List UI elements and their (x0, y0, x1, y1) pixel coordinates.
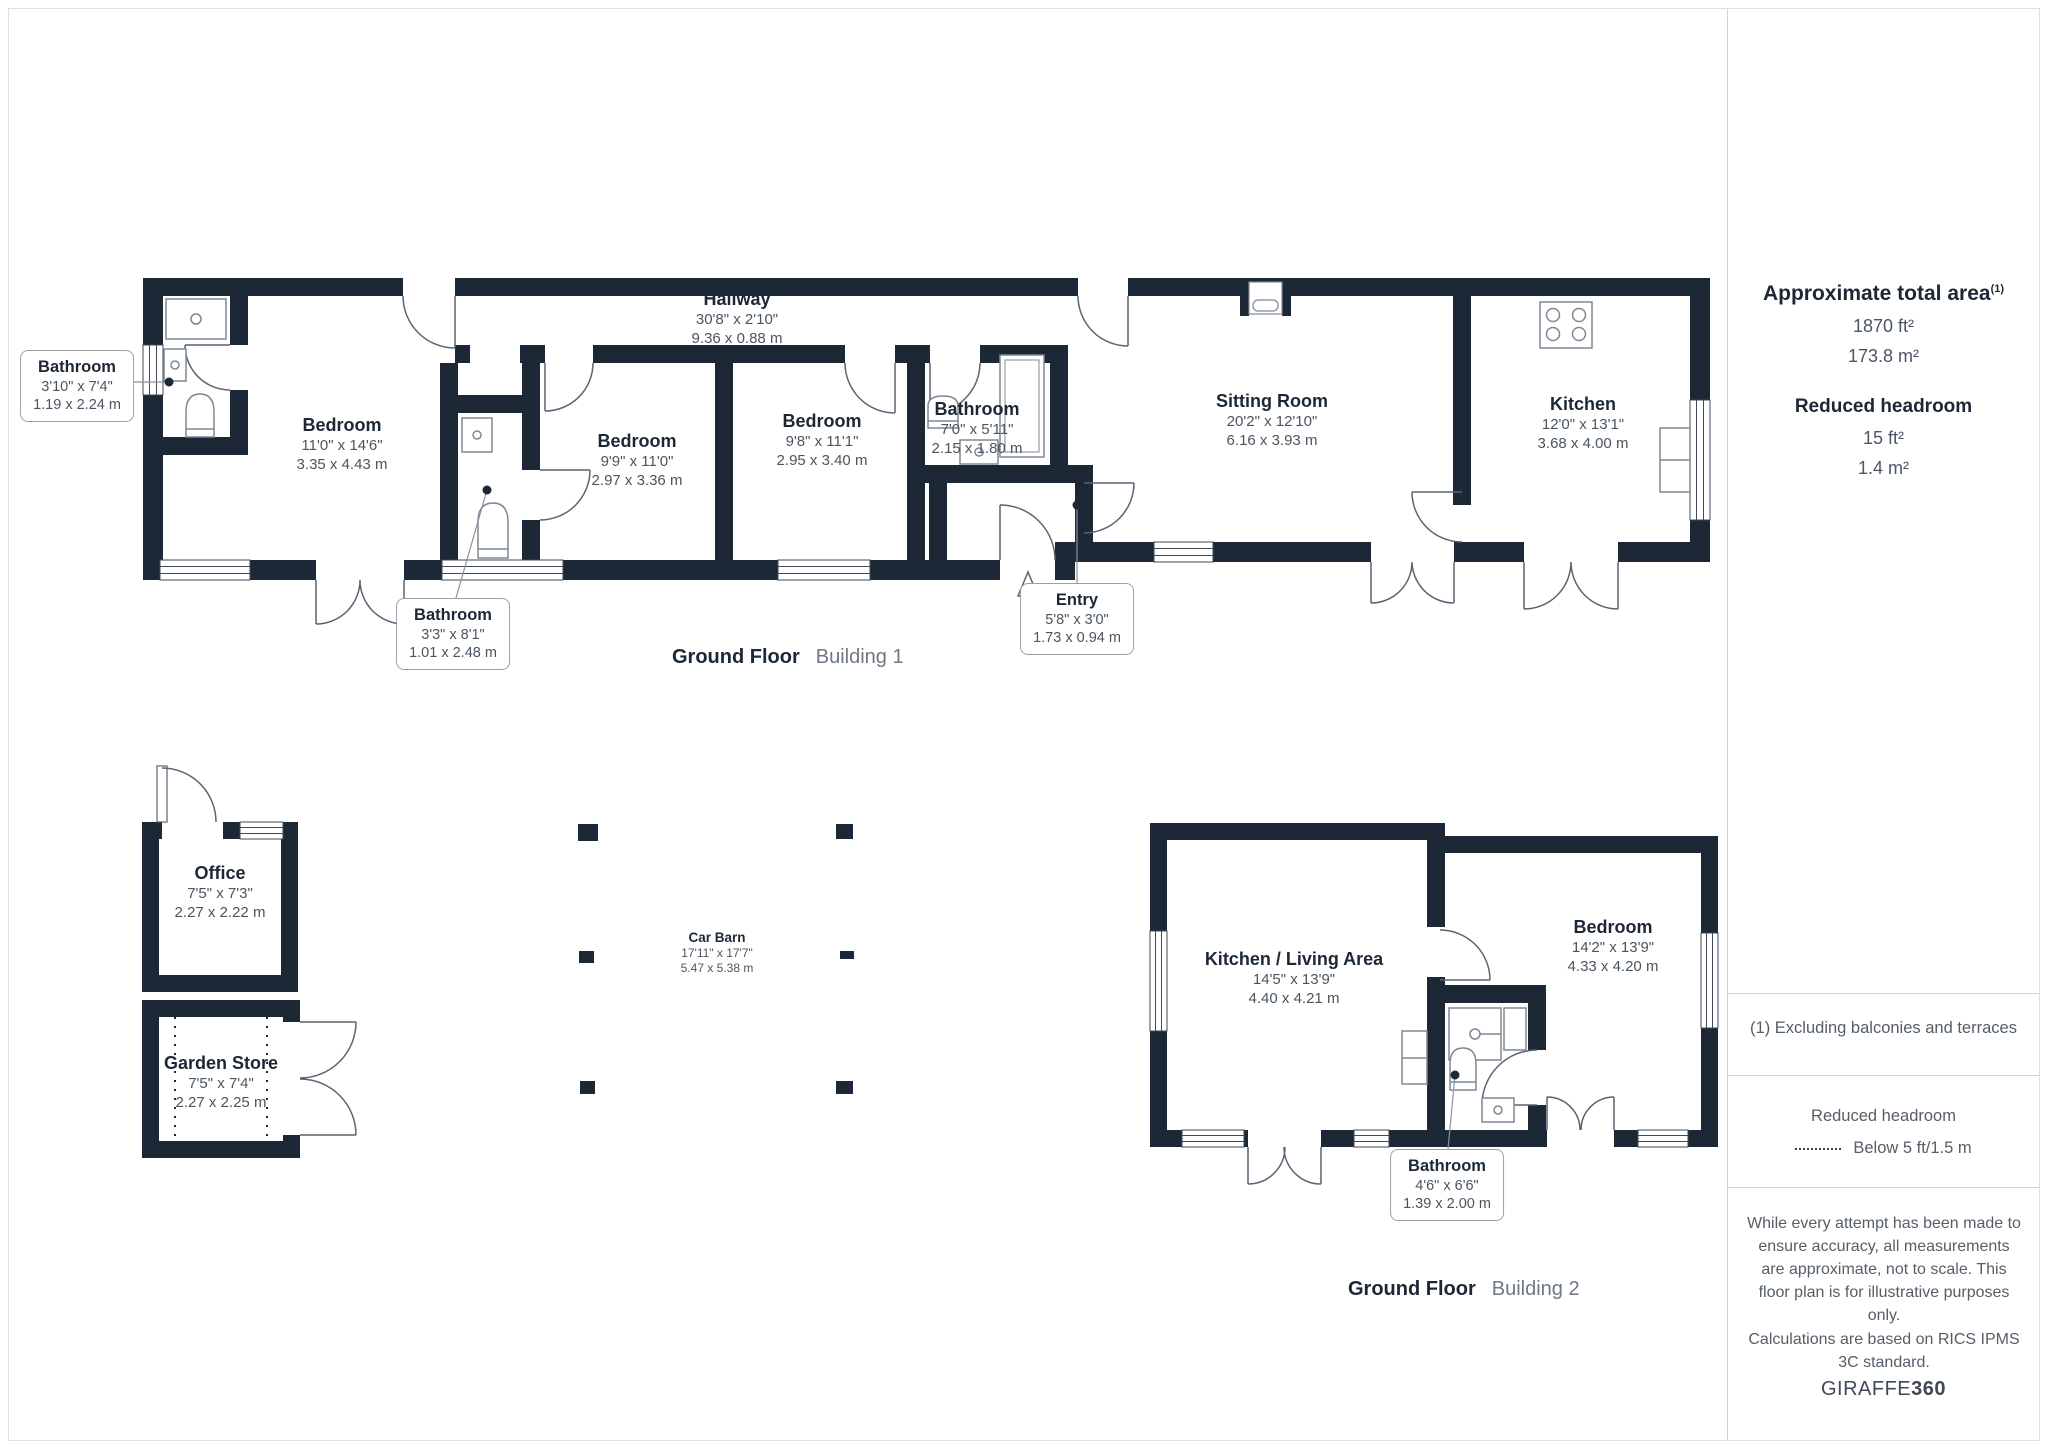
building2-fixtures (1402, 1008, 1526, 1122)
sink-icon (1482, 1098, 1514, 1122)
callout-bathroom-b2: Bathroom 4'6" x 6'6" 1.39 x 2.00 m (1390, 1149, 1504, 1221)
sidebar-section-divider (1728, 993, 2039, 994)
sidebar-divider (1727, 9, 1728, 1440)
total-area-metric: 173.8 m² (1727, 346, 2040, 367)
legend-label: Below 5 ft/1.5 m (1853, 1139, 1971, 1158)
callout-entry: Entry 5'8" x 3'0" 1.73 x 0.94 m (1020, 583, 1134, 655)
room-label-office: Office 7'5" x 7'3" 2.27 x 2.22 m (175, 862, 266, 922)
room-label-bedroom-b2: Bedroom 14'2" x 13'9" 4.33 x 4.20 m (1568, 916, 1659, 976)
room-label-bedroom-2: Bedroom 9'9" x 11'0" 2.97 x 3.36 m (592, 430, 683, 490)
kitchen-sink-icon (1660, 428, 1690, 492)
total-area-imperial: 1870 ft² (1727, 316, 2040, 337)
sidebar-section-divider (1728, 1075, 2039, 1076)
fireplace-niche (1249, 282, 1282, 314)
room-label-sitting-room: Sitting Room 20'2" x 12'10" 6.16 x 3.93 … (1216, 390, 1328, 450)
reduced-headroom-title: Reduced headroom (1727, 396, 2040, 418)
toilet-icon (186, 394, 214, 437)
dotted-line-icon (1795, 1148, 1841, 1150)
reduced-headroom-metric: 1.4 m² (1727, 458, 2040, 479)
legend-row: Below 5 ft/1.5 m (1727, 1139, 2040, 1158)
caption-building1: Ground FloorBuilding 1 (672, 646, 904, 669)
cupboard-icon (1504, 1008, 1526, 1050)
room-label-bathroom-mid: Bathroom 7'0" x 5'11" 2.15 x 1.80 m (932, 398, 1023, 458)
caption-building2: Ground FloorBuilding 2 (1348, 1278, 1580, 1301)
sidebar-section-divider (1728, 1187, 2039, 1188)
footnote-marker: (1) (1991, 283, 2004, 295)
callout-bathroom-small: Bathroom 3'3" x 8'1" 1.01 x 2.48 m (396, 598, 510, 670)
room-label-kitchen-living: Kitchen / Living Area 14'5" x 13'9" 4.40… (1205, 948, 1383, 1008)
room-label-bedroom-1: Bedroom 11'0" x 14'6" 3.35 x 4.43 m (297, 414, 388, 474)
room-label-bedroom-3: Bedroom 9'8" x 11'1" 2.95 x 3.40 m (777, 410, 868, 470)
legend-title: Reduced headroom (1727, 1107, 2040, 1126)
room-label-garden-store: Garden Store 7'5" x 7'4" 2.27 x 2.25 m (164, 1052, 278, 1112)
sidebar-disclaimer-1: While every attempt has been made to ens… (1745, 1212, 2023, 1327)
floor-plan-drawing (0, 0, 2048, 1449)
toilet-icon (478, 503, 508, 558)
sink-icon (462, 418, 492, 452)
room-label-kitchen: Kitchen 12'0" x 13'1" 3.68 x 4.00 m (1538, 393, 1629, 453)
stove-icon (1540, 302, 1592, 348)
sidebar-footnote: (1) Excluding balconies and terraces (1727, 1019, 2040, 1038)
garden-store-doors (300, 1022, 356, 1135)
shower-icon (166, 299, 226, 339)
office-window (240, 822, 283, 839)
counter-icon (1402, 1031, 1427, 1084)
sink-icon (164, 349, 186, 381)
sidebar-total-area-title: Approximate total area(1) (1727, 282, 2040, 306)
brand-logo: GIRAFFE360 (1727, 1378, 2040, 1401)
sidebar-disclaimer-2: Calculations are based on RICS IPMS 3C s… (1745, 1328, 2023, 1374)
callout-bathroom-left: Bathroom 3'10" x 7'4" 1.19 x 2.24 m (20, 350, 134, 422)
office-door (157, 766, 216, 822)
room-label-car-barn: Car Barn 17'11" x 17'7" 5.47 x 5.38 m (681, 930, 754, 976)
reduced-headroom-imperial: 15 ft² (1727, 428, 2040, 449)
room-label-hallway: Hallway 30'8" x 2'10" 9.36 x 0.88 m (692, 288, 783, 348)
floor-plan-page: Bedroom 11'0" x 14'6" 3.35 x 4.43 m Hall… (0, 0, 2048, 1449)
